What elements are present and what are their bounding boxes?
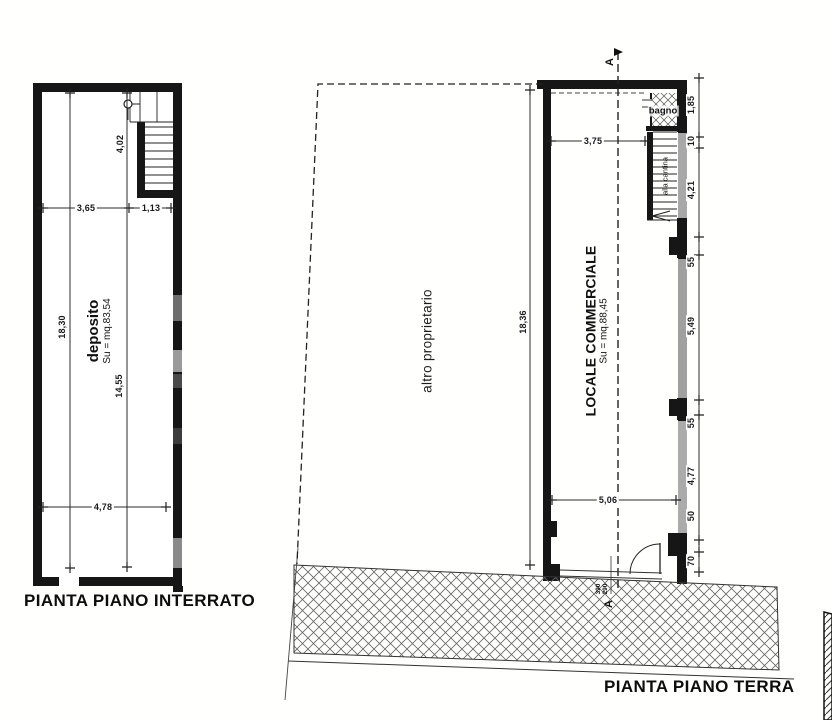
dim-total-height-basement: 18,30: [57, 313, 67, 341]
right-edge-strip-hatch: [824, 612, 832, 720]
dim-chain-0: 1,85: [686, 94, 696, 116]
bathroom-label: bagno: [648, 106, 679, 117]
room-area: Su = mq.83,54: [102, 298, 114, 363]
door-swing-arc: [630, 544, 660, 574]
door-height-note: 390 290: [595, 584, 609, 595]
room-name: deposito: [86, 298, 102, 363]
dim-chain-7: 50: [686, 509, 696, 523]
sidewalk-hatch: [294, 565, 779, 670]
section-marker-bottom: A: [603, 600, 615, 608]
room-name: LOCALE COMMERCIALE: [584, 246, 599, 417]
dim-bottom-width-shop: 5,06: [597, 495, 619, 505]
floor-plan-sheet: deposito Su = mq.83,54 18,30 4,02 14,55 …: [0, 0, 832, 720]
basement-landing-lines: [130, 92, 173, 122]
dim-upper-height-basement: 4,02: [115, 133, 125, 155]
dim-chain-2: 4,21: [686, 179, 696, 201]
dim-chain-1: 10: [686, 134, 696, 148]
dim-chain-6: 4,77: [686, 465, 696, 487]
section-marker-top: A: [604, 58, 616, 66]
dim-bottom-width-basement: 4,78: [92, 502, 114, 512]
column-symbol-icon: [124, 100, 132, 108]
parcel-label: altro proprietario: [420, 289, 435, 393]
dim-lower-height-basement: 14,55: [114, 372, 124, 400]
door-note-bottom: 290: [602, 584, 609, 595]
basement-plan-title: PIANTA PIANO INTERRATO: [24, 591, 255, 611]
dim-chain-5: 55: [686, 416, 696, 430]
dim-top-width-shop: 3,75: [582, 136, 604, 146]
dim-top-width-right: 1,13: [140, 203, 162, 213]
plan-linework: [0, 0, 832, 720]
basement-room-label: deposito Su = mq.83,54: [86, 298, 114, 363]
door-note-top: 390: [595, 584, 602, 595]
dim-chain-4: 5,49: [686, 315, 696, 337]
ground-plan-title: PIANTA PIANO TERRA: [604, 677, 794, 697]
dim-top-width-left: 3,65: [75, 203, 97, 213]
dim-total-height-shop: 18,36: [518, 308, 528, 336]
dim-chain-8: 70: [686, 554, 696, 568]
dim-chain-3: 55: [686, 255, 696, 269]
basement-stair-treads: [145, 127, 173, 183]
stair-label: alla cantina: [661, 157, 670, 195]
room-area: Su = mq.88,45: [599, 246, 611, 417]
commercial-room-label: LOCALE COMMERCIALE Su = mq.88,45: [584, 246, 611, 417]
